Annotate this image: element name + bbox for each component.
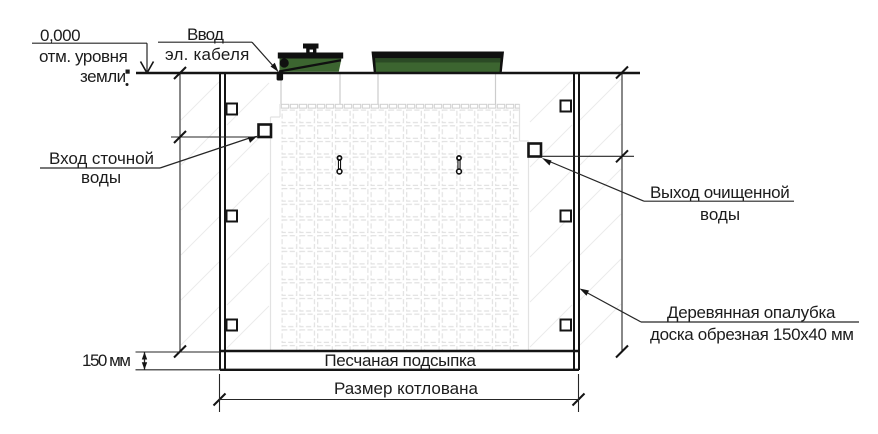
svg-text:воды: воды (81, 168, 121, 187)
svg-text:земли: земли (80, 67, 126, 86)
svg-text:эл. кабеля: эл. кабеля (165, 45, 250, 64)
svg-text:Вход сточной: Вход сточной (49, 149, 154, 168)
svg-text:150 мм: 150 мм (82, 351, 130, 370)
svg-text:отм. уровня: отм. уровня (39, 47, 128, 66)
svg-text:Песчаная подсыпка: Песчаная подсыпка (324, 351, 476, 370)
svg-text:доска обрезная 150х40 мм: доска обрезная 150х40 мм (650, 325, 854, 344)
svg-text:Размер котлована: Размер котлована (334, 379, 479, 398)
svg-text:Ввод: Ввод (187, 25, 224, 44)
svg-text:0,000: 0,000 (40, 26, 80, 45)
svg-text:Деревянная опалубка: Деревянная опалубка (667, 303, 836, 322)
svg-text:Выход очищенной: Выход очищенной (650, 183, 790, 202)
svg-text:воды: воды (700, 205, 740, 224)
